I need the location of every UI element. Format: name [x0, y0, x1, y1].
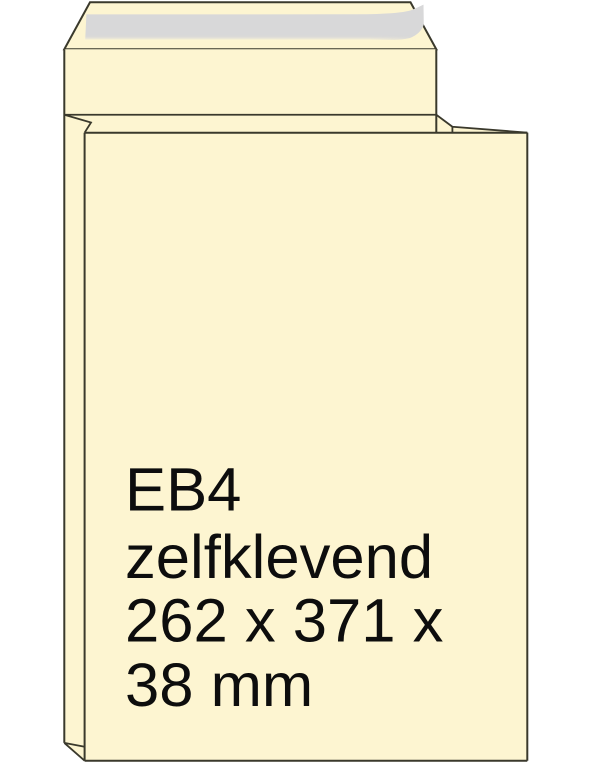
svg-text:38 mm: 38 mm [125, 651, 313, 720]
svg-text:EB4: EB4 [125, 456, 241, 525]
svg-text:262 x 371 x: 262 x 371 x [125, 587, 444, 656]
svg-text:zelfklevend: zelfklevend [125, 523, 433, 592]
